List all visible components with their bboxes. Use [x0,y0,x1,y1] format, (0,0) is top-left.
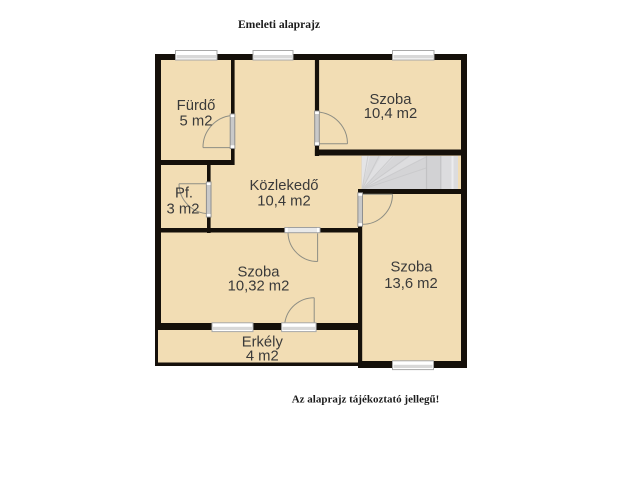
svg-text:Az alaprajz tájékoztató jelleg: Az alaprajz tájékoztató jellegű! [292,394,440,406]
svg-text:Fürdő: Fürdő [177,98,216,114]
svg-text:Szoba: Szoba [391,259,434,275]
svg-text:10,32 m2: 10,32 m2 [228,279,290,295]
svg-text:3 m2: 3 m2 [167,202,200,218]
svg-text:Emeleti alaprajz: Emeleti alaprajz [238,18,320,31]
svg-text:5 m2: 5 m2 [180,114,213,130]
svg-text:Pf.: Pf. [175,186,193,202]
svg-text:10,4 m2: 10,4 m2 [257,193,310,209]
svg-text:4 m2: 4 m2 [246,348,279,364]
svg-text:10,4 m2: 10,4 m2 [364,106,417,122]
svg-text:13,6 m2: 13,6 m2 [384,276,437,292]
svg-text:Közlekedő: Közlekedő [249,178,318,194]
